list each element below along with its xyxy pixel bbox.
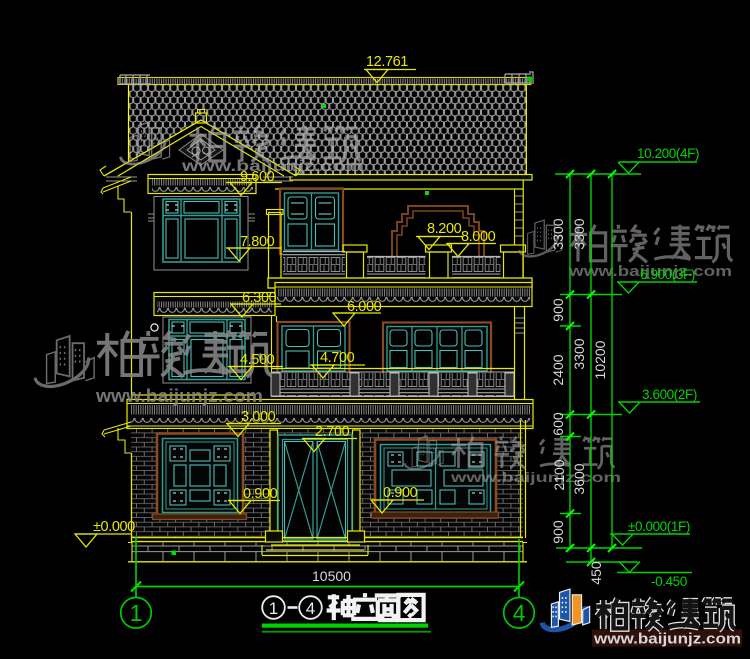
- svg-text:www.baijunjz.com: www.baijunjz.com: [450, 470, 621, 485]
- svg-text:3300: 3300: [550, 218, 566, 249]
- svg-text:4: 4: [513, 600, 526, 626]
- svg-text:3.600(2F): 3.600(2F): [642, 387, 697, 402]
- svg-text:3300: 3300: [571, 338, 587, 369]
- svg-text:±0.000(1F): ±0.000(1F): [628, 519, 690, 534]
- svg-text:www.baijunjz.com: www.baijunjz.com: [593, 631, 741, 648]
- svg-text:4.700: 4.700: [320, 350, 355, 366]
- svg-text:1: 1: [130, 600, 143, 626]
- svg-text:2.700: 2.700: [315, 424, 350, 440]
- svg-text:±0.000: ±0.000: [93, 519, 135, 535]
- svg-text:8.200: 8.200: [427, 221, 462, 237]
- svg-text:2100: 2100: [551, 459, 567, 490]
- svg-text:www.baijunjz.com: www.baijunjz.com: [95, 386, 263, 406]
- svg-text:12.761: 12.761: [366, 54, 408, 70]
- svg-text:3.000: 3.000: [241, 409, 276, 425]
- svg-text:4: 4: [306, 599, 315, 618]
- svg-text:600: 600: [550, 412, 566, 436]
- svg-text:8.000: 8.000: [461, 229, 496, 245]
- svg-text:450: 450: [588, 561, 604, 585]
- svg-text:6.900(3F): 6.900(3F): [640, 267, 695, 282]
- svg-text:10200: 10200: [592, 340, 608, 379]
- svg-text:0.900: 0.900: [383, 485, 418, 501]
- svg-text:3600: 3600: [571, 463, 587, 494]
- svg-text:1: 1: [269, 599, 278, 618]
- svg-text:2400: 2400: [550, 354, 566, 385]
- svg-text:10500: 10500: [312, 568, 351, 584]
- svg-text:0.900: 0.900: [243, 486, 278, 502]
- svg-text:900: 900: [550, 520, 566, 544]
- svg-text:-0.450: -0.450: [651, 574, 687, 589]
- svg-text:10.200(4F): 10.200(4F): [637, 146, 699, 161]
- svg-text:4.500: 4.500: [240, 352, 275, 368]
- svg-text:3300: 3300: [571, 218, 587, 249]
- svg-text:900: 900: [550, 298, 566, 322]
